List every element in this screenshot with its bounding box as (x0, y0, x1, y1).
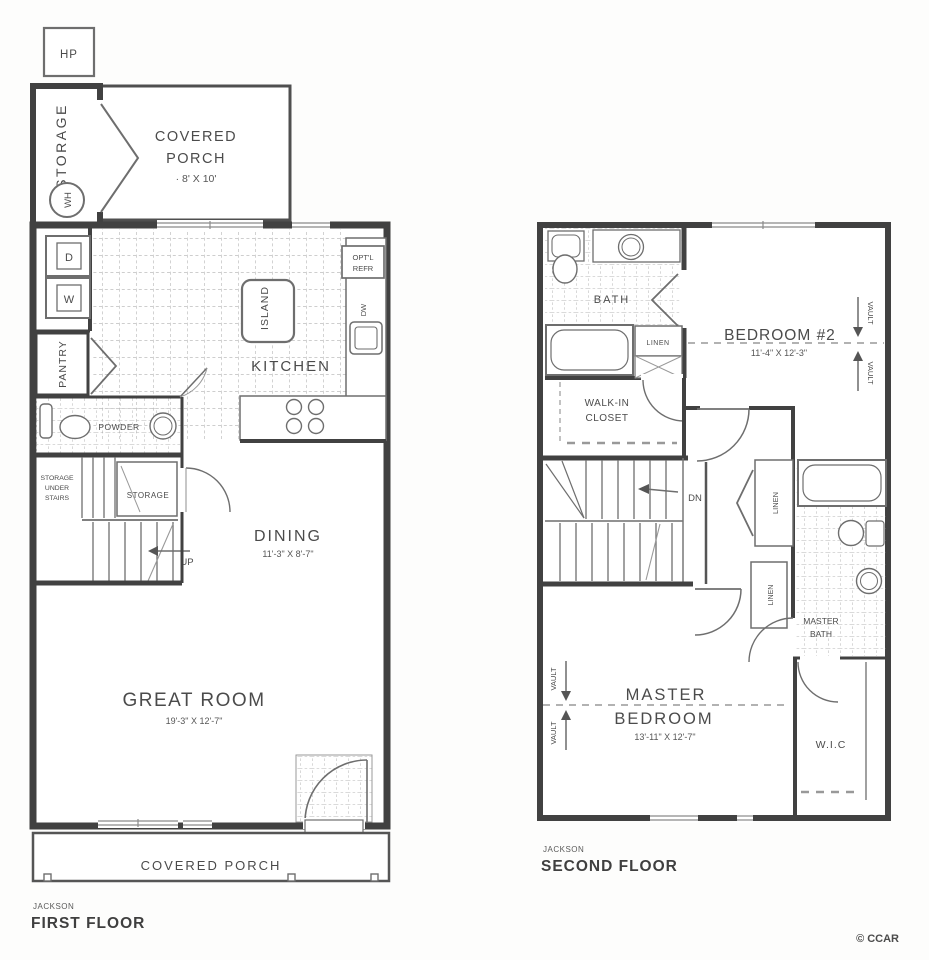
porch-post-2 (288, 874, 295, 881)
dryer-label: D (65, 252, 73, 264)
storage-under-stairs-2: UNDER (45, 485, 69, 492)
powder-label: POWDER (98, 422, 139, 432)
linen-label: LINEN (646, 340, 669, 347)
second-floor-plan-name: JACKSON (543, 845, 584, 854)
kitchen-window (157, 220, 263, 230)
great-room-window-2 (183, 818, 212, 828)
island-label: ISLAND (259, 286, 271, 330)
masterbath-toilet (839, 521, 864, 546)
pantry-label: PANTRY (57, 340, 69, 388)
water-heater-label: WH (63, 192, 74, 208)
porch-top-dims: · 8' X 10' (176, 173, 217, 185)
kitchen-window-2 (292, 220, 330, 230)
walkin-door-gap (641, 374, 683, 383)
bedroom2-label: BEDROOM #2 (724, 327, 836, 344)
powder-cabinet (40, 404, 52, 438)
second-floor-title: SECOND FLOOR (541, 858, 678, 875)
vault-label-4: VAULT (549, 721, 558, 744)
master-bedroom-label-2: BEDROOM (614, 710, 713, 728)
porch-post-1 (44, 874, 51, 881)
porch-top-label-2: PORCH (166, 151, 226, 167)
dining-dims: 11'-3" X 8'-7" (262, 549, 313, 559)
opt-refr-label-1: OPT'L (352, 253, 373, 262)
porch-post-3 (371, 874, 378, 881)
master-window-2 (737, 813, 753, 823)
vault-label-1: VAULT (866, 301, 875, 324)
storage-door-gap (97, 100, 104, 212)
dn-label: DN (688, 493, 702, 504)
bedroom2-dims: 11'-4" X 12'-3" (751, 348, 807, 358)
masterbath-label-1: MASTER (803, 616, 838, 626)
entry-tile-floor (296, 755, 372, 822)
masterbath-toilet-tank (866, 521, 884, 546)
first-floor-plan: HP STORAGE WH COVERED PORCH · 8' X 10' (31, 28, 389, 932)
bath-toilet (553, 255, 577, 283)
dishwasher-label: DW (359, 303, 368, 316)
porch-bottom-label: COVERED PORCH (141, 858, 282, 873)
wic-label: W.I.C (816, 739, 847, 751)
porch-bottom-outline (33, 833, 389, 881)
dining-label: DINING (254, 528, 322, 545)
opt-refr-box (342, 246, 384, 278)
storage-label: STORAGE (53, 103, 69, 189)
hp-label: HP (60, 49, 78, 61)
powder-toilet (60, 416, 90, 439)
great-room-label: GREAT ROOM (122, 690, 265, 711)
bedroom2-window-top (712, 220, 815, 230)
vault-label-2: VAULT (866, 361, 875, 384)
bath-tub (546, 325, 633, 375)
master-bedroom-label-1: MASTER (626, 686, 707, 704)
walkin-label-2: CLOSET (585, 413, 628, 424)
floor-plan-drawing: HP STORAGE WH COVERED PORCH · 8' X 10' (0, 0, 929, 960)
great-room-window-1 (98, 818, 178, 828)
walkin-label-1: WALK-IN (585, 398, 630, 409)
stair-storage-closet (117, 462, 177, 516)
second-floor-plan: BATH LINEN WALK-IN CLOSET BEDROOM #2 11'… (540, 220, 888, 875)
small-linen-label: LINEN (768, 585, 775, 606)
entry-step (305, 820, 363, 833)
first-floor-plan-name: JACKSON (33, 902, 74, 911)
master-bedroom-dims: 13'-11" X 12'-7" (634, 732, 695, 742)
masterbath-label-2: BATH (810, 629, 832, 639)
bath-label: BATH (594, 294, 631, 306)
master-window-1 (650, 813, 698, 823)
great-room-dims: 19'-3" X 12'-7" (166, 716, 223, 726)
stair-storage-label: STORAGE (127, 491, 169, 500)
storage-under-stairs-1: STORAGE (40, 475, 74, 482)
porch-top-label-1: COVERED (155, 129, 237, 145)
floor-plan-sheet: HP STORAGE WH COVERED PORCH · 8' X 10' (0, 0, 929, 960)
opt-refr-label-2: REFR (353, 264, 374, 273)
bath-door-gap (680, 270, 688, 328)
first-floor-title: FIRST FLOOR (31, 915, 145, 932)
storage-under-stairs-3: STAIRS (45, 495, 70, 502)
vault-label-3: VAULT (549, 667, 558, 690)
hall-linen-label: LINEN (771, 492, 780, 514)
masterbath-tub (798, 460, 886, 506)
washer-label: W (64, 294, 75, 306)
copyright-watermark: © CCAR (856, 933, 899, 945)
kitchen-label: KITCHEN (251, 358, 331, 375)
